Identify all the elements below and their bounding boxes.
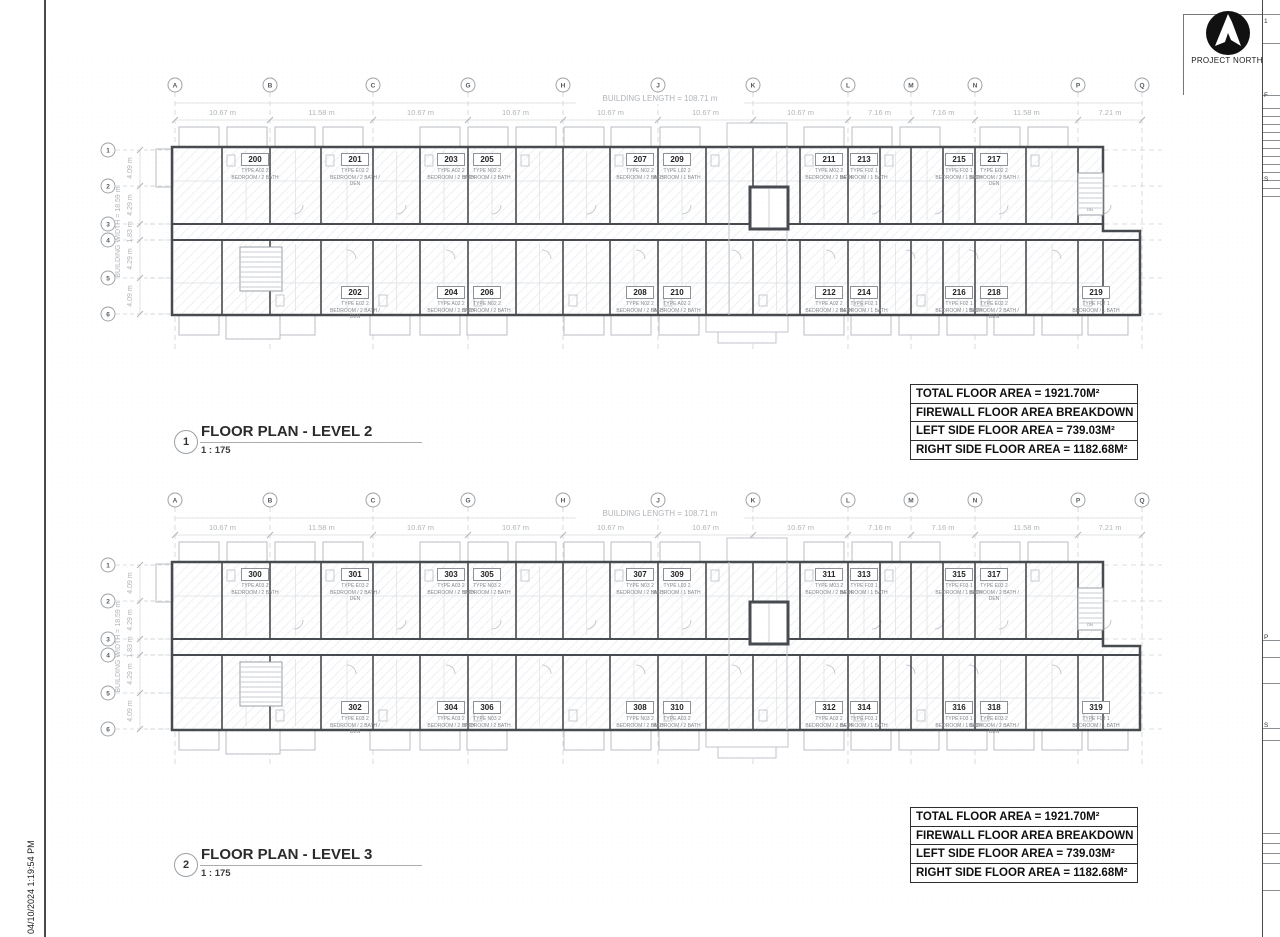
title-block-text-fragment: P [1264,634,1268,641]
grid-bubble-label: 6 [106,726,110,733]
balcony [660,127,700,147]
entry-block [226,730,280,754]
grid-bubble: 2 [101,594,115,608]
grid-bubble: G [461,493,475,507]
figure-title: FLOOR PLAN - LEVEL 2 [201,423,372,440]
dim-label: 10.67 m [209,523,236,532]
grid-bubble: 1 [101,558,115,572]
title-block-divider [1263,14,1280,15]
entry-block [226,315,280,339]
balcony [420,542,460,562]
balcony [851,315,891,335]
balcony [516,127,556,147]
grid-bubble: 3 [101,632,115,646]
unit-number: 306 [473,701,501,714]
title-block-divider [1263,833,1280,834]
grid-bubble-label: G [465,82,470,89]
title-block-divider [1263,890,1280,891]
unit-number: 314 [850,701,878,714]
unit-type: TYPE F02 1 BEDROOM / 1 BATH [837,301,891,314]
balcony [467,315,507,335]
grid-bubble: C [366,78,380,92]
grid-bubble-label: 4 [106,652,110,659]
center-block-top [727,123,787,147]
grid-bubble: H [556,78,570,92]
grid-bubble-label: K [751,497,756,504]
balcony [851,730,891,750]
dim-label: 10.67 m [692,523,719,532]
grid-bubble: 6 [101,307,115,321]
unit-number: 301 [341,568,369,581]
dim-label: 10.67 m [597,108,624,117]
unit-label: 300TYPE A03 2 BEDROOM / 2 BATH [228,568,282,596]
unit-number: 214 [850,286,878,299]
unit-number: 217 [980,153,1008,166]
unit-number: 206 [473,286,501,299]
grid-bubble: G [461,78,475,92]
title-block-text-fragment: S [1264,176,1268,183]
title-block-divider [1263,196,1280,197]
dim-label: 10.67 m [407,108,434,117]
title-block-divider [1263,148,1280,149]
balcony [804,315,844,335]
grid-bubble: J [651,493,665,507]
building-width-label: BUILDING WIDTH = 18.59 m [115,601,122,692]
left-bay [156,564,173,602]
dim-label: 10.67 m [787,523,814,532]
unit-label: 210TYPE A02 2 BEDROOM / 2 BATH [650,286,704,314]
grid-bubble: N [968,493,982,507]
title-block-divider [1263,843,1280,844]
unit-type: TYPE L03 2 BEDROOM / 1 BATH [650,583,704,596]
unit-type: TYPE E02 2 BEDROOM / 2 BATH / DEN [328,168,382,188]
grid-bubble: J [651,78,665,92]
unit-type: TYPE N03 2 BEDROOM / 2 BATH [460,583,514,596]
figure-scale: 1 : 175 [201,868,231,879]
balcony [1088,730,1128,750]
grid-bubble-label: C [371,497,376,504]
balcony [611,730,651,750]
balcony [611,315,651,335]
balcony [980,127,1020,147]
unit-label: 209TYPE L02 2 BEDROOM / 1 BATH [650,153,704,181]
grid-bubble-label: 5 [106,690,110,697]
center-block-bottom [706,315,788,332]
balcony [420,127,460,147]
unit-number: 202 [341,286,369,299]
center-block-bottom2 [718,747,776,758]
area-table-row: FIREWALL FLOOR AREA BREAKDOWN [910,403,1138,423]
grid-bubble: 2 [101,179,115,193]
balcony [275,127,315,147]
grid-bubble-label: H [561,497,566,504]
balcony [1042,730,1082,750]
grid-bubble: B [263,493,277,507]
stair-left [240,662,282,706]
unit-type: TYPE E03 2 BEDROOM / 2 BATH / DEN [967,583,1021,603]
floor-plan-linework: DNABCGHJKLMNPQBUILDING LENGTH = 108.71 m… [0,0,1280,937]
unit-type: TYPE N02 2 BEDROOM / 2 BATH [460,301,514,314]
balcony [1028,127,1068,147]
stair-dn-label: DN [1087,622,1093,627]
figure-number-bubble: 2 [174,853,198,877]
unit-type: TYPE F03 1 BEDROOM / 1 BATH [1069,716,1123,729]
unit-type: TYPE A03 2 BEDROOM / 2 BATH [228,583,282,596]
unit-label: 213TYPE F02 1 BEDROOM / 1 BATH [837,153,891,181]
area-table-row: RIGHT SIDE FLOOR AREA = 1182.68M² [910,863,1138,883]
dim-label: 10.67 m [692,108,719,117]
unit-type: TYPE E02 2 BEDROOM / 2 BATH / DEN [328,301,382,321]
grid-bubble-label: L [846,82,850,89]
unit-label: 219TYPE F02 1 BEDROOM / 1 BATH [1069,286,1123,314]
dim-label: 7.21 m [1099,523,1122,532]
unit-label: 206TYPE N02 2 BEDROOM / 2 BATH [460,286,514,314]
balcony [804,730,844,750]
unit-label: 317TYPE E03 2 BEDROOM / 2 BATH / DEN [967,568,1021,603]
stair-right: DN [1078,588,1103,630]
unit-type: TYPE A02 2 BEDROOM / 2 BATH [228,168,282,181]
unit-type: TYPE N03 2 BEDROOM / 2 BATH [460,716,514,729]
grid-bubble-label: Q [1139,82,1144,89]
balcony [659,730,699,750]
dim-label: 4.29 m [127,609,134,631]
grid-bubble: A [168,78,182,92]
balcony [659,315,699,335]
unit-type: TYPE F03 1 BEDROOM / 1 BATH [837,716,891,729]
dim-label: 4.09 m [127,285,134,307]
figure-title-underline [200,865,422,866]
grid-bubble-label: 2 [106,598,110,605]
grid-bubble: K [746,78,760,92]
balcony [227,127,267,147]
unit-label: 301TYPE E03 2 BEDROOM / 2 BATH / DEN [328,568,382,603]
grid-bubble-label: M [908,82,913,89]
unit-type: TYPE E03 2 BEDROOM / 2 BATH / DEN [967,716,1021,736]
building-length-label: BUILDING LENGTH = 108.71 m [603,509,718,518]
dim-label: 11.58 m [1013,523,1040,532]
grid-bubble: M [904,493,918,507]
unit-label: 310TYPE A03 2 BEDROOM / 2 BATH [650,701,704,729]
unit-type: TYPE F02 1 BEDROOM / 1 BATH [1069,301,1123,314]
unit-label: 318TYPE E03 2 BEDROOM / 2 BATH / DEN [967,701,1021,736]
unit-label: 201TYPE E02 2 BEDROOM / 2 BATH / DEN [328,153,382,188]
dim-label: 7.16 m [932,108,955,117]
unit-type: TYPE L02 2 BEDROOM / 1 BATH [650,168,704,181]
dim-label: 10.67 m [502,108,529,117]
balcony [611,542,651,562]
sheet-left-border [44,0,46,937]
dim-label: 10.67 m [407,523,434,532]
unit-number: 302 [341,701,369,714]
title-block-divider [1263,108,1280,109]
title-block-divider [1263,132,1280,133]
balcony [420,315,460,335]
grid-bubble-label: G [465,497,470,504]
title-block-divider [1263,853,1280,854]
balcony [179,127,219,147]
balcony [468,542,508,562]
balcony [564,730,604,750]
unit-number: 213 [850,153,878,166]
balcony [467,730,507,750]
dim-label: 11.58 m [308,108,335,117]
logo-cell-border-v [1183,14,1184,95]
building-width-label: BUILDING WIDTH = 18.59 m [115,186,122,277]
dim-label: 1.83 m [127,636,134,658]
unit-type: TYPE E03 2 BEDROOM / 2 BATH / DEN [328,716,382,736]
dim-label: 10.67 m [209,108,236,117]
stair-right: DN [1078,173,1103,215]
grid-bubble: 5 [101,271,115,285]
unit-label: 306TYPE N03 2 BEDROOM / 2 BATH [460,701,514,729]
balcony [179,315,219,335]
balcony [179,542,219,562]
project-north-icon [1198,8,1258,60]
dim-label: 4.29 m [127,248,134,270]
grid-bubble-label: 5 [106,275,110,282]
unit-number: 218 [980,286,1008,299]
unit-number: 318 [980,701,1008,714]
unit-number: 200 [241,153,269,166]
title-block-divider [1263,657,1280,658]
unit-number: 319 [1082,701,1110,714]
area-table-row: TOTAL FLOOR AREA = 1921.70M² [910,384,1138,404]
grid-bubble: P [1071,78,1085,92]
balcony [564,127,604,147]
unit-type: TYPE F03 1 BEDROOM / 1 BATH [837,583,891,596]
figure-number-bubble: 1 [174,430,198,454]
dim-label: 4.09 m [127,700,134,722]
grid-bubble: N [968,78,982,92]
project-north-label: PROJECT NORTH [1186,56,1268,65]
area-table-row: RIGHT SIDE FLOOR AREA = 1182.68M² [910,440,1138,460]
unit-label: 217TYPE E02 2 BEDROOM / 2 BATH / DEN [967,153,1021,188]
balcony [323,127,363,147]
stair-left [240,247,282,291]
dim-label: 4.09 m [127,157,134,179]
grid-bubble-label: P [1076,82,1081,89]
unit-label: 314TYPE F03 1 BEDROOM / 1 BATH [837,701,891,729]
unit-label: 302TYPE E03 2 BEDROOM / 2 BATH / DEN [328,701,382,736]
grid-bubble: 6 [101,722,115,736]
title-block-divider [1263,863,1280,864]
grid-bubble-label: M [908,497,913,504]
unit-number: 305 [473,568,501,581]
dim-label: 4.29 m [127,194,134,216]
grid-bubble-label: 1 [106,562,110,569]
stair-dn-label: DN [1087,207,1093,212]
title-block-divider [1263,740,1280,741]
balcony [900,542,940,562]
balcony [564,315,604,335]
grid-bubble: L [841,493,855,507]
grid-bubble: 3 [101,217,115,231]
unit-label: 202TYPE E02 2 BEDROOM / 2 BATH / DEN [328,286,382,321]
unit-number: 209 [663,153,691,166]
grid-bubble-label: 6 [106,311,110,318]
title-block-divider [1263,156,1280,157]
grid-bubble-label: J [656,497,660,504]
grid-bubble: Q [1135,493,1149,507]
dim-label: 11.58 m [308,523,335,532]
center-block-top [727,538,787,562]
unit-number: 201 [341,153,369,166]
grid-bubble-label: N [973,82,978,89]
grid-bubble: M [904,78,918,92]
title-block-divider [1263,43,1280,44]
grid-bubble-label: B [268,82,273,89]
figure-title-underline [200,442,422,443]
balcony [611,127,651,147]
dim-label: 10.67 m [597,523,624,532]
balcony [900,127,940,147]
grid-bubble-label: K [751,82,756,89]
grid-bubble: B [263,78,277,92]
grid-bubble-label: B [268,497,273,504]
balcony [227,542,267,562]
grid-bubble-label: 3 [106,636,110,643]
unit-number: 313 [850,568,878,581]
center-block-bottom [706,730,788,747]
grid-bubble: L [841,78,855,92]
area-table-row: LEFT SIDE FLOOR AREA = 739.03M² [910,421,1138,441]
title-block-divider [1263,116,1280,117]
unit-number: 317 [980,568,1008,581]
dim-label: 7.21 m [1099,108,1122,117]
balcony [1042,315,1082,335]
unit-label: 218TYPE E02 2 BEDROOM / 2 BATH / DEN [967,286,1021,321]
drawing-sheet: DNABCGHJKLMNPQBUILDING LENGTH = 108.71 m… [0,0,1280,937]
dim-label: 10.67 m [502,523,529,532]
date-stamp: 04/10/2024 1:19:54 PM [26,840,36,934]
title-block-divider [1263,188,1280,189]
unit-label: 319TYPE F03 1 BEDROOM / 1 BATH [1069,701,1123,729]
grid-bubble-label: Q [1139,497,1144,504]
unit-label: 313TYPE F03 1 BEDROOM / 1 BATH [837,568,891,596]
grid-bubble-label: 4 [106,237,110,244]
balcony [468,127,508,147]
title-block-text-fragment: F [1264,92,1268,99]
area-summary-table: TOTAL FLOOR AREA = 1921.70M²FIREWALL FLO… [910,808,1138,883]
grid-bubble-label: 2 [106,183,110,190]
unit-number: 310 [663,701,691,714]
unit-label: 214TYPE F02 1 BEDROOM / 1 BATH [837,286,891,314]
balcony [804,542,844,562]
area-table-row: LEFT SIDE FLOOR AREA = 739.03M² [910,844,1138,864]
dim-label: 7.16 m [932,523,955,532]
grid-bubble-label: N [973,497,978,504]
grid-bubble-label: A [173,82,178,89]
unit-number: 219 [1082,286,1110,299]
unit-number: 309 [663,568,691,581]
balcony [899,730,939,750]
unit-number: 300 [241,568,269,581]
figure-scale: 1 : 175 [201,445,231,456]
grid-bubble-label: J [656,82,660,89]
unit-label: 205TYPE N02 2 BEDROOM / 2 BATH [460,153,514,181]
balcony [1028,542,1068,562]
unit-type: TYPE A03 2 BEDROOM / 2 BATH [650,716,704,729]
balcony [852,127,892,147]
balcony [275,315,315,335]
balcony [275,542,315,562]
dim-label: 4.29 m [127,663,134,685]
area-table-row: FIREWALL FLOOR AREA BREAKDOWN [910,826,1138,846]
grid-bubble: Q [1135,78,1149,92]
grid-bubble: 1 [101,143,115,157]
title-block-text-fragment: 1 [1264,18,1268,25]
unit-number: 205 [473,153,501,166]
balcony [804,127,844,147]
balcony [899,315,939,335]
balcony [564,542,604,562]
grid-bubble-label: A [173,497,178,504]
dim-label: 11.58 m [1013,108,1040,117]
unit-label: 200TYPE A02 2 BEDROOM / 2 BATH [228,153,282,181]
grid-bubble-label: P [1076,497,1081,504]
grid-bubble-label: L [846,497,850,504]
grid-bubble: A [168,493,182,507]
grid-bubble: C [366,493,380,507]
unit-label: 309TYPE L03 2 BEDROOM / 1 BATH [650,568,704,596]
grid-bubble-label: C [371,82,376,89]
balcony [275,730,315,750]
unit-type: TYPE E02 2 BEDROOM / 2 BATH / DEN [967,168,1021,188]
balcony [980,542,1020,562]
grid-bubble-label: 1 [106,147,110,154]
unit-type: TYPE A02 2 BEDROOM / 2 BATH [650,301,704,314]
unit-type: TYPE F02 1 BEDROOM / 1 BATH [837,168,891,181]
dim-label: 4.09 m [127,572,134,594]
dim-label: 10.67 m [787,108,814,117]
center-block-bottom2 [718,332,776,343]
balcony [516,542,556,562]
grid-bubble-label: H [561,82,566,89]
grid-bubble: 4 [101,648,115,662]
balcony [660,542,700,562]
title-block-divider [1263,140,1280,141]
left-bay [156,149,173,187]
balcony [420,730,460,750]
grid-bubble-label: 3 [106,221,110,228]
title-block-text-fragment: S [1264,722,1268,729]
grid-bubble: H [556,493,570,507]
title-block-divider [1263,683,1280,684]
unit-number: 210 [663,286,691,299]
title-block-divider [1263,164,1280,165]
balcony [323,542,363,562]
title-block-divider [1263,172,1280,173]
grid-bubble: 4 [101,233,115,247]
area-summary-table: TOTAL FLOOR AREA = 1921.70M²FIREWALL FLO… [910,385,1138,460]
unit-type: TYPE E03 2 BEDROOM / 2 BATH / DEN [328,583,382,603]
balcony [1088,315,1128,335]
dim-label: 7.16 m [868,523,891,532]
grid-bubble: P [1071,493,1085,507]
area-table-row: TOTAL FLOOR AREA = 1921.70M² [910,807,1138,827]
balcony [179,730,219,750]
grid-bubble: 5 [101,686,115,700]
dim-label: 1.83 m [127,221,134,243]
unit-type: TYPE E02 2 BEDROOM / 2 BATH / DEN [967,301,1021,321]
grid-bubble: K [746,493,760,507]
unit-label: 305TYPE N03 2 BEDROOM / 2 BATH [460,568,514,596]
title-block-divider [1263,124,1280,125]
dim-label: 7.16 m [868,108,891,117]
figure-title: FLOOR PLAN - LEVEL 3 [201,846,372,863]
unit-type: TYPE N02 2 BEDROOM / 2 BATH [460,168,514,181]
building-length-label: BUILDING LENGTH = 108.71 m [603,94,718,103]
